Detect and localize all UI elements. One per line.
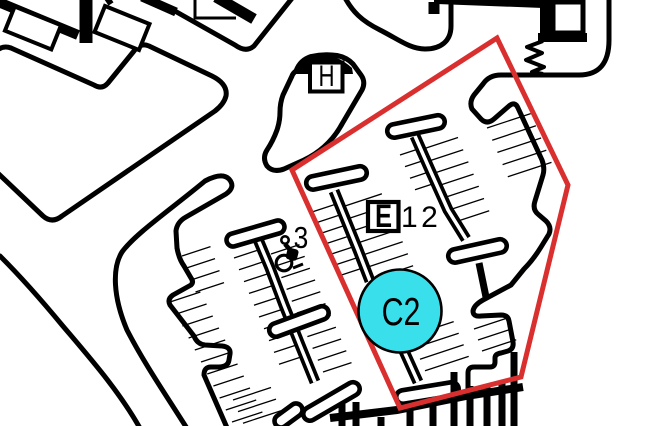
svg-text:H: H — [318, 59, 334, 93]
svg-text:C2: C2 — [382, 290, 421, 333]
svg-text:12: 12 — [401, 201, 441, 234]
svg-text:E: E — [375, 199, 392, 234]
